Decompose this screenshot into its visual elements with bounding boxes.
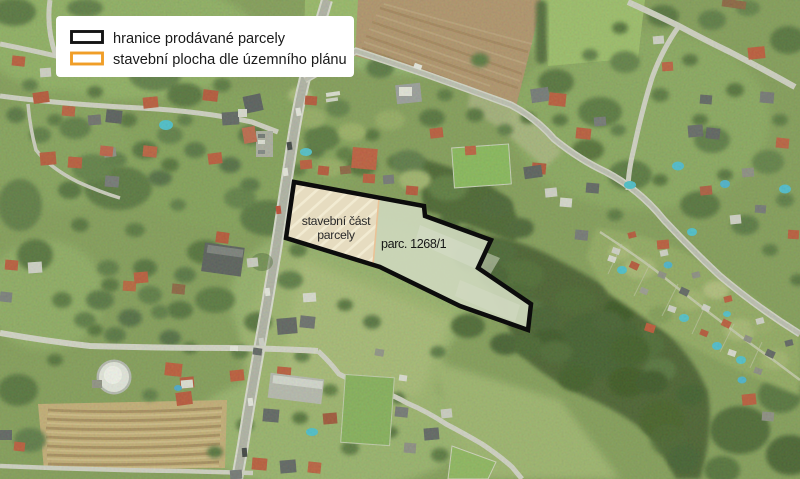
svg-text:parcely: parcely (317, 228, 356, 242)
svg-text:stavební plocha dle územního p: stavební plocha dle územního plánu (113, 52, 347, 68)
svg-text:stavební část: stavební část (302, 214, 371, 228)
svg-text:hranice prodávané parcely: hranice prodávané parcely (113, 31, 286, 47)
svg-text:parc. 1268/1: parc. 1268/1 (381, 237, 447, 251)
